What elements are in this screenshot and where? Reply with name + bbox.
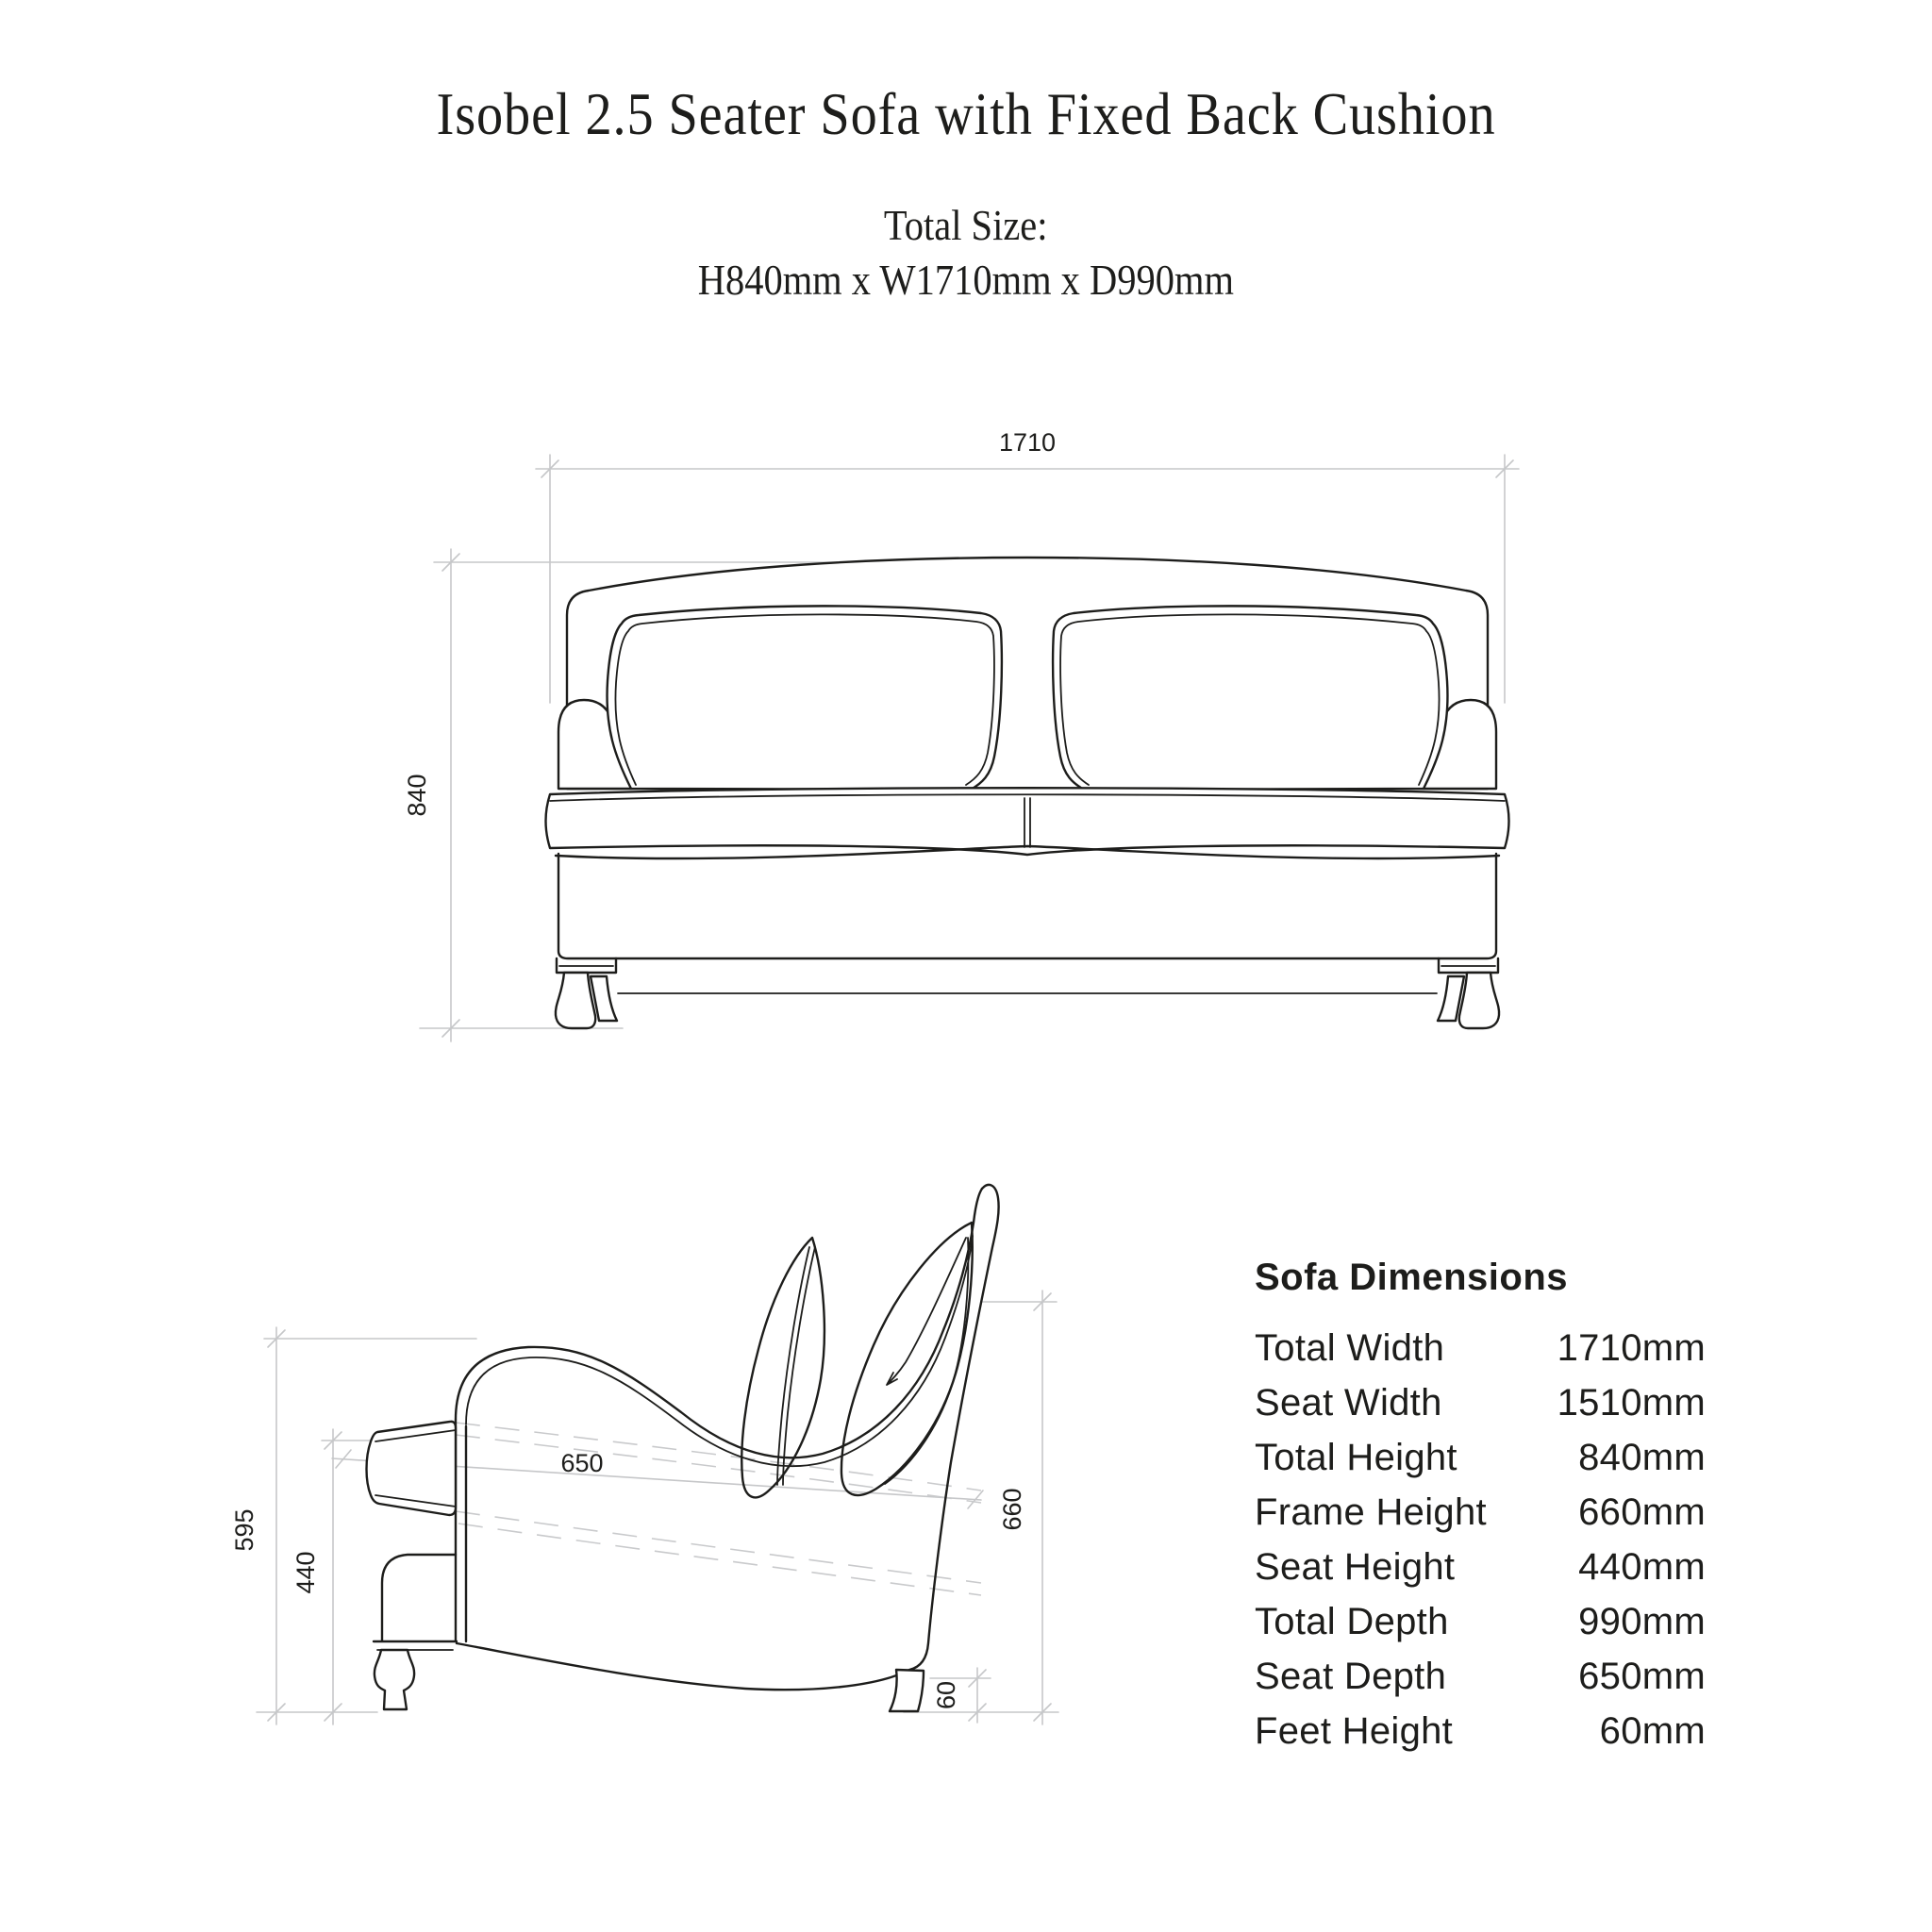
side-frame-height-label: 660 <box>998 1488 1026 1530</box>
back-cushion-leaf-piping <box>885 1238 968 1484</box>
table-row: Total Height840mm <box>1255 1439 1706 1476</box>
page-title: Isobel 2.5 Seater Sofa with Fixed Back C… <box>0 79 1932 149</box>
front-height-dimension-label: 840 <box>403 774 431 816</box>
front-width-dimension-label: 1710 <box>999 428 1056 457</box>
right-leg <box>1438 958 1499 1028</box>
table-row: Seat Depth650mm <box>1255 1657 1706 1695</box>
row-value: 60mm <box>1600 1712 1706 1750</box>
side-front-leg <box>375 1650 414 1709</box>
right-back-cushion <box>1053 606 1447 790</box>
row-value: 1510mm <box>1557 1384 1706 1422</box>
side-overall-height-label: 595 <box>230 1508 258 1551</box>
dimensions-table: Sofa Dimensions Total Width1710mm Seat W… <box>1255 1257 1706 1750</box>
left-leg <box>556 958 617 1028</box>
row-value: 840mm <box>1578 1439 1706 1476</box>
row-label: Frame Height <box>1255 1493 1487 1531</box>
total-size-label: Total Size: <box>0 200 1932 250</box>
arm-sweep-outer <box>456 1189 982 1457</box>
front-elevation-drawing: 1710 840 <box>396 415 1585 1075</box>
row-value: 990mm <box>1578 1603 1706 1641</box>
row-label: Seat Height <box>1255 1548 1455 1586</box>
side-seat-depth-label: 650 <box>560 1449 603 1477</box>
side-feet-height-label: 60 <box>932 1681 960 1709</box>
row-label: Seat Depth <box>1255 1657 1446 1695</box>
row-value: 650mm <box>1578 1657 1706 1695</box>
page-title-text: Isobel 2.5 Seater Sofa with Fixed Back C… <box>437 79 1496 149</box>
back-outer-edge <box>457 1185 999 1690</box>
row-label: Total Depth <box>1255 1603 1449 1641</box>
dimensions-table-title: Sofa Dimensions <box>1255 1257 1706 1299</box>
row-value: 1710mm <box>1557 1329 1706 1367</box>
row-label: Total Height <box>1255 1439 1457 1476</box>
spec-sheet-page: Isobel 2.5 Seater Sofa with Fixed Back C… <box>0 0 1932 1932</box>
arm-sweep-piping <box>466 1236 973 1466</box>
side-seat-height-label: 440 <box>291 1551 320 1593</box>
row-label: Seat Width <box>1255 1384 1442 1422</box>
dimensions-table-rows: Total Width1710mm Seat Width1510mm Total… <box>1255 1329 1706 1750</box>
row-label: Feet Height <box>1255 1712 1453 1750</box>
left-back-cushion <box>608 606 1002 790</box>
side-sofa-outline <box>367 1185 999 1711</box>
side-elevation-drawing: 595 440 650 660 60 <box>226 1160 1075 1783</box>
front-rail <box>374 1555 457 1641</box>
table-row: Frame Height660mm <box>1255 1493 1706 1531</box>
row-value: 440mm <box>1578 1548 1706 1586</box>
table-row: Feet Height60mm <box>1255 1712 1706 1750</box>
front-sofa-outline <box>546 558 1509 1028</box>
table-row: Seat Height440mm <box>1255 1548 1706 1586</box>
base-box <box>558 854 1496 958</box>
table-row: Total Depth990mm <box>1255 1603 1706 1641</box>
table-row: Total Width1710mm <box>1255 1329 1706 1367</box>
total-size-value: H840mm x W1710mm x D990mm <box>0 255 1932 305</box>
row-value: 660mm <box>1578 1493 1706 1531</box>
table-row: Seat Width1510mm <box>1255 1384 1706 1422</box>
arm-front-edge <box>456 1420 466 1641</box>
row-label: Total Width <box>1255 1329 1444 1367</box>
